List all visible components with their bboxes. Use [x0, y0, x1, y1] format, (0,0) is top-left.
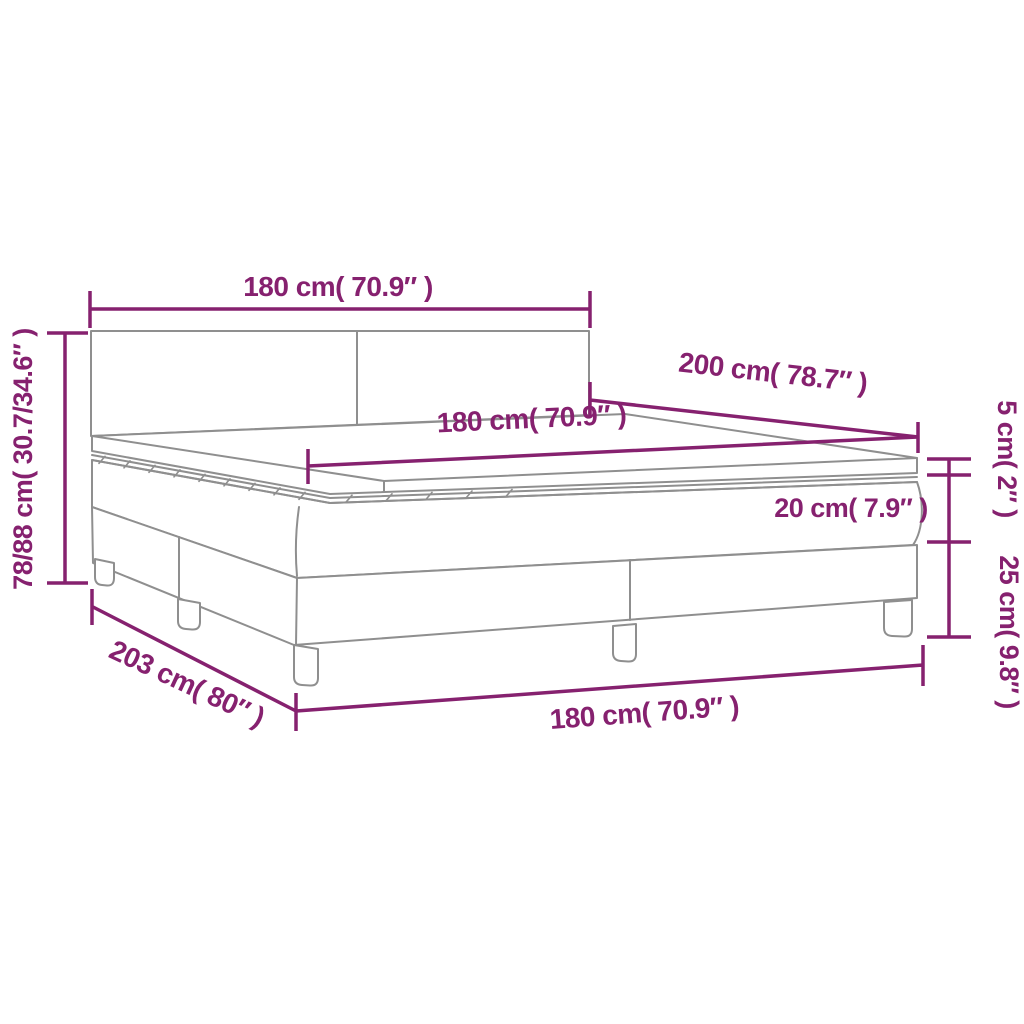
dim-base-height-label: 25 cm( 9.8″ ) [994, 555, 1024, 709]
leg-4 [613, 624, 636, 662]
diagram-canvas: 180 cm( 70.9″ ) 78/88 cm( 30.7/34.6″ ) 2… [0, 0, 1024, 1024]
dim-bed-length-label: 200 cm( 78.7″ ) [677, 347, 869, 399]
base-corner-edge [296, 578, 297, 645]
bed-dimension-diagram: 180 cm( 70.9″ ) 78/88 cm( 30.7/34.6″ ) 2… [0, 0, 1024, 1024]
dim-total-height: 78/88 cm( 30.7/34.6″ ) [8, 328, 88, 590]
leg-5 [884, 600, 912, 637]
dim-mattress-height-label: 20 cm( 7.9″ ) [774, 493, 928, 523]
dim-total-height-label: 78/88 cm( 30.7/34.6″ ) [8, 328, 38, 590]
dim-headboard-width: 180 cm( 70.9″ ) [90, 271, 590, 328]
dim-headboard-width-label: 180 cm( 70.9″ ) [243, 271, 433, 302]
dim-base-width-label: 180 cm( 70.9″ ) [549, 690, 740, 735]
dim-topper-height-label: 5 cm( 2″ ) [992, 400, 1022, 517]
dim-base-width: 180 cm( 70.9″ ) [296, 645, 923, 735]
leg-3 [294, 645, 318, 686]
leg-2 [178, 599, 200, 630]
leg-1 [95, 559, 114, 586]
